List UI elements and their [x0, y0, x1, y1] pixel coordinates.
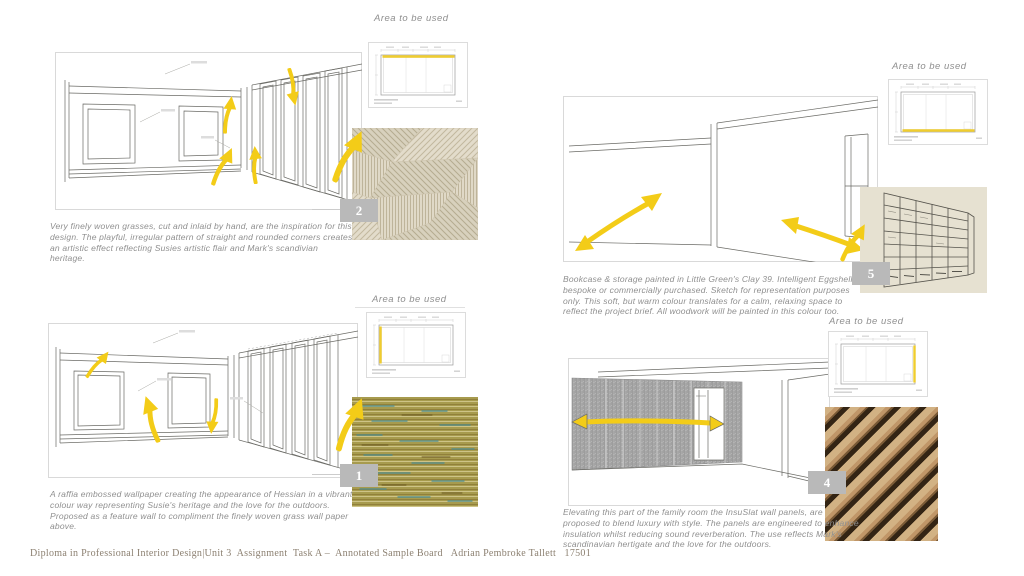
caption-clay-bookcase: Bookcase & storage painted in Little Gre…	[563, 274, 865, 317]
floor-plan-top-wall	[368, 42, 468, 108]
area-to-be-used-label: Area to be used	[892, 61, 967, 72]
area-to-be-used-label: Area to be used	[829, 316, 904, 327]
room-sketch-woven-grass-wall	[55, 52, 362, 210]
swatch-woven-grass	[352, 128, 478, 245]
area-to-be-used-label: Area to be used	[372, 294, 447, 305]
room-sketch-slat-wall	[568, 358, 830, 506]
sample-number-badge: 4	[808, 471, 846, 494]
footer-course-info: Diploma in Professional Interior Design|…	[30, 548, 591, 559]
sample-number-badge: 2	[340, 199, 378, 222]
caption-insuslat: Elevating this part of the family room t…	[563, 507, 859, 550]
yellow-arrow-icon	[246, 145, 267, 184]
sample-number-badge: 5	[852, 262, 890, 285]
caption-raffia: A raffia embossed wallpaper creating the…	[50, 489, 355, 532]
sample-number-badge: 1	[340, 464, 378, 487]
floor-plan-bottom-wall	[888, 79, 988, 145]
floor-plan-right-wall	[828, 331, 928, 397]
area-to-be-used-label: Area to be used	[374, 13, 449, 24]
swatch-raffia	[352, 397, 478, 507]
floor-plan-left-wall	[366, 312, 466, 378]
annotated-sample-board: Area to be used 2 Very finely woven gras…	[0, 0, 1024, 576]
caption-woven-grass: Very finely woven grasses, cut and inlai…	[50, 221, 355, 264]
room-sketch-painted-walls	[563, 96, 878, 262]
room-sketch-raffia-wall	[48, 323, 358, 478]
